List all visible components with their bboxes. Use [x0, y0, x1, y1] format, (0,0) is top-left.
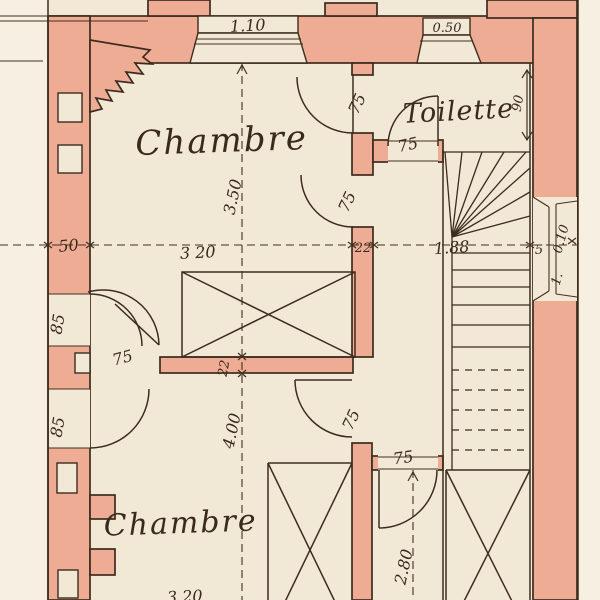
- dim-toilette-depth: 90: [510, 94, 528, 113]
- floor-plan-page: Chambre Toilette Chambre 1.10 0.50 50 3 …: [0, 0, 600, 600]
- right-margin: [578, 0, 600, 600]
- wall-corner-top-right: [487, 0, 577, 18]
- wall-pier-stub-2: [325, 3, 377, 16]
- floor-plan-drawing: Chambre Toilette Chambre 1.10 0.50 50 3 …: [0, 0, 600, 600]
- wall-pilaster-2: [90, 549, 115, 575]
- wall-notch: [75, 353, 90, 373]
- dim-wall-left: 50: [58, 235, 80, 256]
- dim-window-top-right: 0.50: [433, 21, 462, 36]
- dim-gap-right: 5: [535, 243, 543, 258]
- left-margin: [0, 0, 48, 600]
- dim-opening-85-upper: 85: [46, 312, 68, 335]
- room-label-chambre-upper: Chambre: [135, 118, 309, 164]
- dim-wall-inner-v: 22: [354, 241, 372, 256]
- flue-box-1: [58, 93, 82, 122]
- flue-box-3: [57, 463, 77, 493]
- wall-right: [533, 18, 577, 600]
- dim-wall-inner-h: 22: [216, 359, 234, 379]
- window-top-right-splay: [417, 35, 481, 63]
- wall-pier-stub-1: [148, 0, 210, 16]
- flue-box-2: [58, 145, 82, 173]
- dim-chambre-width: 3 20: [179, 242, 216, 263]
- room-label-chambre-lower: Chambre: [103, 503, 258, 543]
- wall-inner-v-pier: [352, 443, 372, 600]
- wall-inner-v-stub: [352, 63, 373, 75]
- wall-inner-h: [160, 357, 353, 373]
- dim-window-top-left: 1.10: [229, 15, 266, 36]
- window-top-left-splay: [190, 33, 307, 63]
- dim-opening-85-lower: 85: [46, 415, 68, 438]
- dim-chambre-lower-width: 3 20: [166, 586, 203, 600]
- flue-box-4: [58, 570, 78, 598]
- dim-door-bottom: 75: [392, 447, 415, 469]
- room-label-toilette: Toilette: [402, 93, 515, 130]
- dim-stair-width: 1.88: [433, 237, 470, 258]
- wall-inner-v-1: [352, 133, 373, 175]
